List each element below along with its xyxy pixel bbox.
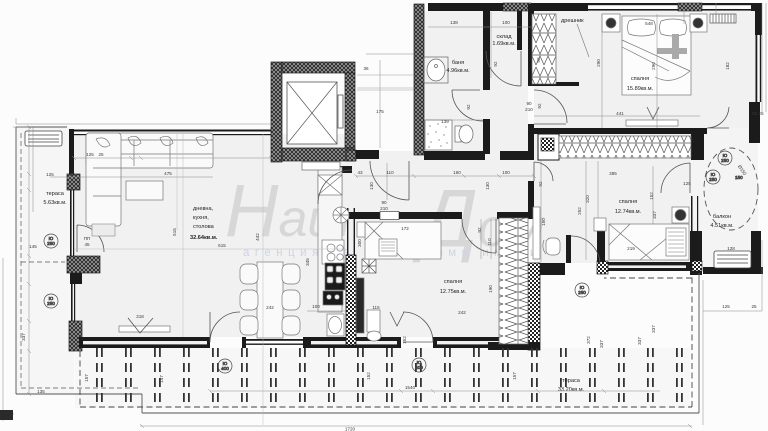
svg-text:15.89кв.м.: 15.89кв.м. bbox=[627, 86, 654, 92]
svg-text:тераса: тераса bbox=[562, 378, 581, 384]
svg-text:спалня: спалня bbox=[619, 199, 637, 205]
svg-text:337: 337 bbox=[21, 333, 26, 341]
svg-text:дневна,: дневна, bbox=[193, 206, 214, 212]
svg-text:175: 175 bbox=[376, 109, 384, 114]
svg-text:515: 515 bbox=[172, 228, 177, 236]
svg-text:дрешник: дрешник bbox=[561, 18, 584, 24]
svg-text:кухня,: кухня, bbox=[193, 215, 209, 221]
svg-text:92: 92 bbox=[537, 103, 542, 109]
svg-text:615: 615 bbox=[218, 243, 226, 248]
svg-text:147: 147 bbox=[159, 375, 164, 383]
svg-text:1540: 1540 bbox=[405, 385, 416, 390]
svg-text:125: 125 bbox=[722, 304, 730, 309]
svg-text:250: 250 bbox=[709, 177, 717, 182]
svg-text:442: 442 bbox=[255, 233, 260, 241]
svg-text:252: 252 bbox=[577, 207, 582, 215]
svg-text:4.96кв.м.: 4.96кв.м. bbox=[446, 68, 470, 74]
svg-text:128: 128 bbox=[727, 246, 735, 251]
svg-text:столова: столова bbox=[193, 224, 215, 230]
svg-text:385: 385 bbox=[609, 171, 617, 176]
svg-text:219: 219 bbox=[627, 246, 635, 251]
svg-text:160: 160 bbox=[453, 170, 461, 175]
svg-text:125: 125 bbox=[46, 172, 54, 177]
svg-text:320: 320 bbox=[585, 195, 590, 203]
svg-text:400: 400 bbox=[415, 365, 423, 370]
svg-text:152: 152 bbox=[402, 336, 407, 344]
svg-text:баня: баня bbox=[452, 60, 464, 66]
svg-text:250: 250 bbox=[721, 158, 729, 163]
svg-text:210: 210 bbox=[380, 206, 388, 211]
svg-text:32.64кв.м.: 32.64кв.м. bbox=[190, 235, 218, 241]
svg-text:250: 250 bbox=[578, 290, 586, 295]
svg-text:242: 242 bbox=[458, 310, 466, 315]
svg-text:290: 290 bbox=[651, 62, 656, 70]
svg-text:345: 345 bbox=[305, 258, 310, 266]
svg-text:100: 100 bbox=[502, 170, 510, 175]
svg-text:125: 125 bbox=[683, 181, 691, 186]
svg-text:25: 25 bbox=[751, 304, 757, 309]
svg-text:337: 337 bbox=[651, 325, 656, 333]
svg-text:5.63кв.м.: 5.63кв.м. bbox=[43, 200, 67, 206]
svg-text:92: 92 bbox=[466, 104, 471, 110]
svg-text:372: 372 bbox=[586, 336, 591, 344]
svg-text:125: 125 bbox=[86, 152, 94, 157]
svg-text:25: 25 bbox=[69, 172, 75, 177]
svg-text:138: 138 bbox=[450, 20, 458, 25]
svg-text:182: 182 bbox=[725, 62, 730, 70]
svg-text:4.51кв.м.: 4.51кв.м. bbox=[710, 223, 734, 229]
svg-text:150: 150 bbox=[735, 175, 743, 180]
svg-text:36: 36 bbox=[363, 66, 369, 71]
svg-text:210: 210 bbox=[525, 107, 533, 112]
svg-text:92: 92 bbox=[538, 181, 543, 187]
svg-text:441: 441 bbox=[616, 111, 624, 116]
svg-text:548: 548 bbox=[645, 21, 653, 26]
svg-text:145: 145 bbox=[29, 244, 37, 249]
svg-text:1.69кв.м.: 1.69кв.м. bbox=[492, 41, 516, 47]
svg-text:135: 135 bbox=[37, 389, 45, 394]
svg-text:100: 100 bbox=[312, 304, 320, 309]
svg-text:172: 172 bbox=[401, 226, 409, 231]
svg-text:92: 92 bbox=[536, 57, 541, 63]
svg-text:110: 110 bbox=[386, 170, 394, 175]
svg-text:склад: склад bbox=[497, 34, 513, 40]
svg-text:45: 45 bbox=[84, 242, 90, 247]
svg-text:475: 475 bbox=[164, 171, 172, 176]
svg-text:ПП: ПП bbox=[84, 236, 91, 241]
svg-text:12.75кв.м.: 12.75кв.м. bbox=[440, 289, 467, 295]
svg-text:спалня: спалня bbox=[444, 279, 462, 285]
svg-text:157: 157 bbox=[84, 374, 89, 382]
svg-text:130: 130 bbox=[485, 182, 490, 190]
svg-text:92: 92 bbox=[493, 61, 498, 67]
svg-text:92: 92 bbox=[477, 227, 482, 233]
svg-text:318: 318 bbox=[136, 314, 144, 319]
svg-text:242: 242 bbox=[266, 305, 274, 310]
svg-text:152: 152 bbox=[649, 192, 654, 200]
svg-text:152: 152 bbox=[366, 372, 371, 380]
svg-text:110: 110 bbox=[487, 238, 492, 246]
svg-text:100: 100 bbox=[502, 20, 510, 25]
svg-text:130: 130 bbox=[369, 182, 374, 190]
svg-text:115: 115 bbox=[372, 305, 380, 310]
svg-text:25: 25 bbox=[98, 152, 104, 157]
svg-text:157: 157 bbox=[512, 372, 517, 380]
svg-text:337: 337 bbox=[652, 211, 657, 219]
svg-text:250: 250 bbox=[47, 301, 55, 306]
svg-text:тераса: тераса bbox=[46, 191, 65, 197]
svg-text:90: 90 bbox=[381, 200, 387, 205]
svg-text:190: 190 bbox=[488, 285, 493, 293]
svg-text:290: 290 bbox=[596, 59, 601, 67]
svg-text:балкон: балкон bbox=[713, 214, 731, 220]
svg-text:337: 337 bbox=[637, 337, 642, 345]
svg-text:150: 150 bbox=[541, 218, 546, 226]
svg-text:90: 90 bbox=[526, 101, 532, 106]
svg-text:12.74кв.м.: 12.74кв.м. bbox=[615, 209, 642, 215]
svg-text:25 25: 25 25 bbox=[752, 111, 764, 116]
svg-text:33.20кв.м.: 33.20кв.м. bbox=[558, 387, 585, 393]
svg-text:400: 400 bbox=[221, 366, 229, 371]
svg-text:1720: 1720 bbox=[345, 427, 356, 431]
svg-text:43: 43 bbox=[357, 170, 363, 175]
svg-text:250: 250 bbox=[47, 241, 55, 246]
svg-text:спалня: спалня bbox=[631, 76, 649, 82]
svg-text:139: 139 bbox=[441, 119, 449, 124]
svg-text:300: 300 bbox=[357, 239, 362, 247]
svg-text:337: 337 bbox=[599, 340, 604, 348]
